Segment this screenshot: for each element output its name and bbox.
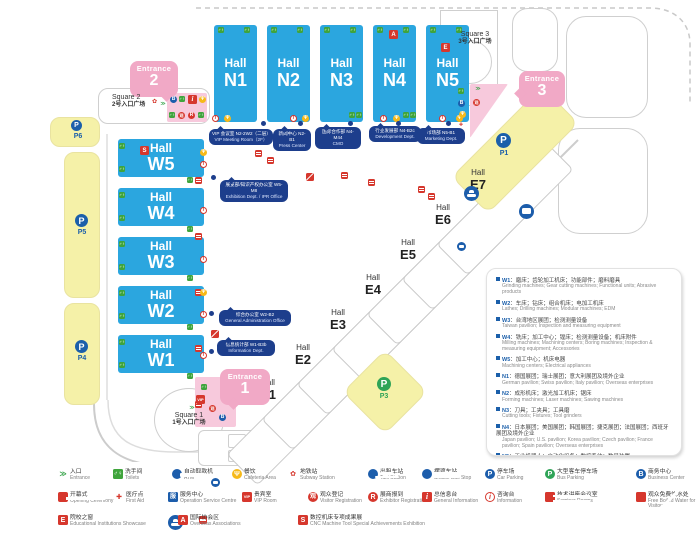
seminar-icon	[195, 233, 202, 240]
bullet-icon	[496, 453, 500, 456]
panel-item-en: Machining centers; Electrical appliances	[502, 364, 672, 370]
toilets-icon: ♂♀	[244, 27, 250, 33]
legend-item-subway: ✿地铁站Subway Station	[288, 469, 335, 481]
legend-label-en: General Information	[434, 499, 478, 505]
cafeteria-icon: Ψ	[200, 149, 207, 156]
exhibition-floor-plan: { "colors":{"hall_blue":"#2BA6DF","entra…	[0, 0, 700, 546]
seminar-icon	[195, 177, 202, 184]
toilets-icon: ♂♀	[356, 112, 362, 118]
legend-label-en: VIP Room	[254, 499, 277, 505]
assoc-icon: A	[389, 30, 398, 39]
seminar-icon	[341, 172, 348, 179]
panel-item-w5: W5：加工中心；机床电器Machining centers; Electrica…	[496, 356, 672, 369]
hall-info-panel: W1：磨床；齿轮加工机床；功能部件；磨料磨具Grinding machines;…	[486, 268, 682, 456]
bullet-icon	[496, 300, 500, 304]
legend-label-en: Entrance	[70, 476, 90, 482]
panel-item-w4: W4：铣床；加工中心；镗床；检测测量设备；机床附件Milling machine…	[496, 334, 672, 353]
hall-w1: HallW1	[118, 335, 204, 373]
parking-icon: P	[71, 120, 82, 131]
cafeteria-icon: Ψ	[224, 115, 231, 122]
service-icon: 服	[168, 492, 178, 502]
panel-item-en: Taiwan pavilion; Inspection and measurin…	[502, 324, 672, 330]
info-icon: i	[200, 256, 207, 263]
hall-id: N2	[277, 71, 300, 90]
taxi-icon	[368, 469, 378, 479]
panel-item-n1: N1：德国展团；瑞士展团；意大利展团及境外企业German pavilion; …	[496, 373, 672, 386]
square-label-2: Square 11号入口广场	[156, 412, 222, 428]
toilets-icon: ♂♀	[187, 373, 193, 379]
atm-icon	[457, 242, 466, 251]
toilets-icon: ♂♀	[119, 143, 125, 149]
callout-3: 行业发展部 N4-B2cDevelopment Dept.	[369, 126, 421, 142]
legend-item-cafeteria: Ψ餐饮Cafeteria Area	[232, 469, 276, 481]
taxi-icon	[464, 186, 479, 201]
legend-item-taxi: 出租车站Taxi Station	[368, 469, 406, 481]
toilets-icon: ♂♀	[271, 27, 277, 33]
toilets-icon: ♂♀	[187, 226, 193, 232]
legend-item-cnc: S数控机床专项成果展CNC Machine Tool Special Achie…	[298, 515, 425, 527]
toilets-icon: ♂♀	[119, 313, 125, 319]
toilets-icon: ♂♀	[113, 469, 123, 479]
square-name-cn: 1号入口广场	[156, 420, 222, 427]
legend-label-en: Visitor Registration	[320, 499, 362, 505]
callout-anchor-dot	[261, 121, 266, 126]
square-name-cn: 2号入口广场	[112, 102, 158, 109]
panel-item-en: Japan pavilion; U.S. pavilion; Korea pav…	[502, 438, 672, 450]
hall-w3: HallW3	[118, 237, 204, 275]
panel-item-cn: 工业机器人；自动化设备；数控系统；数显装置	[515, 454, 631, 456]
square-label-1: Square 22号入口广场	[112, 94, 158, 110]
hall-n1: HallN1	[214, 25, 257, 122]
hall-label-e6: HallE6	[421, 204, 465, 227]
info-icon: i	[485, 492, 495, 502]
legend-text: 洗手间Toilets	[125, 469, 142, 481]
entrance-3-bubble: Entrance3	[519, 71, 565, 107]
shuttle-icon	[422, 469, 432, 479]
info-icon: i	[200, 161, 207, 168]
cafeteria-icon: Ψ	[200, 289, 207, 296]
firstaid-icon: ✚	[114, 492, 124, 502]
toilets-icon: ♂♀	[430, 27, 436, 33]
legend-item-firstaid: ✚医疗点First Aid	[114, 492, 144, 504]
hall-label-e2: HallE2	[281, 344, 325, 367]
hall-id: W4	[148, 204, 175, 223]
bullet-icon	[496, 317, 500, 321]
legend-item-water: 观众免费饮水处Free Boiled Water for Visitors	[636, 492, 700, 510]
visitor-icon: 观	[473, 99, 480, 106]
callout-text-en: Information Dept.	[220, 348, 272, 354]
panel-item-en: Lathes; Drilling machines; Modular machi…	[502, 307, 672, 313]
bullet-icon	[496, 390, 500, 394]
panel-item-code: N4	[502, 425, 509, 431]
toilets-icon: ♂♀	[403, 112, 409, 118]
toilets-icon: ♂♀	[119, 339, 125, 345]
info-icon: i	[200, 352, 207, 359]
seminar-icon	[545, 492, 555, 502]
legend-item-info: i咨询台Information	[485, 492, 522, 504]
entrance-icon: ≫	[58, 469, 68, 479]
hall-id: N4	[383, 71, 406, 90]
hall-word: Hall	[277, 57, 299, 70]
hall-word: Hall	[436, 57, 458, 70]
legend-label-en: First Aid	[126, 499, 144, 505]
legend-label-en: Overseas Associations	[190, 522, 241, 528]
bullet-icon	[496, 356, 500, 360]
legend-item-entrance: ≫入口Entrance	[58, 469, 90, 481]
legend-item-opening: 开幕式Opening Ceremony	[58, 492, 113, 504]
callout-text-en: Press Center	[276, 143, 308, 149]
legend-text: 地铁站Subway Station	[300, 469, 335, 481]
hall-w4: HallW4	[118, 188, 204, 226]
panel-item-en: Grinding machines; Gear cutting machines…	[502, 284, 672, 296]
exhibitor-icon: R	[368, 492, 378, 502]
hall-id: W2	[148, 302, 175, 321]
toilets-icon: ♂♀	[198, 112, 204, 118]
hall-id: E4	[351, 283, 395, 297]
bullet-icon	[496, 277, 500, 281]
info-icon: i	[290, 115, 297, 122]
legend-label-en: Business Center	[648, 476, 685, 482]
toilets-icon: ♂♀	[119, 290, 125, 296]
entrance-1-bubble: Entrance1	[220, 369, 270, 405]
legend-text: 贵宾室VIP Room	[254, 492, 277, 504]
buspark-icon: P	[545, 469, 555, 479]
callout-anchor-dot	[211, 175, 216, 180]
toilets-icon: ♂♀	[119, 362, 125, 368]
assoc-icon: A	[178, 515, 188, 525]
panel-item-cn: 日本展团；美国展团；韩国展团；捷克展团；法国展团；西班牙展团及境外企业	[496, 425, 669, 437]
legend-text: 观众登记Visitor Registration	[320, 492, 362, 504]
toilets-icon: ♂♀	[458, 88, 464, 94]
toilets-icon: ♂♀	[377, 27, 383, 33]
map-legend: ≫入口Entrance♂♀洗手间Toilets自动取款机ATMΨ餐饮Cafete…	[0, 462, 700, 546]
seminar-icon	[195, 345, 202, 352]
cafeteria-icon: Ψ	[199, 96, 206, 103]
parking-icon: P	[496, 133, 511, 148]
legend-item-edu: E院校之窗Educational Institutions Showcase	[58, 515, 146, 527]
water-icon	[306, 173, 314, 181]
panel-item-en: Milling machines; Machining centers; Bor…	[502, 341, 672, 353]
legend-text: 数控机床专项成果展CNC Machine Tool Special Achiev…	[310, 515, 425, 527]
parking-icon: P	[377, 377, 391, 391]
road-outline	[558, 128, 648, 234]
legend-text: 展商报到Exhibitor Registration	[380, 492, 428, 504]
legend-item-geninfo: i总信息台General Information	[422, 492, 478, 504]
entrance-icon: ≫	[474, 85, 482, 93]
callout-4: 市场部 N5-B1Marketing Dept.	[417, 128, 465, 144]
hall-word: Hall	[383, 57, 405, 70]
parking-icon: P	[75, 214, 88, 227]
legend-item-visitor: 观观众登记Visitor Registration	[308, 492, 362, 504]
bizcenter-icon: B	[458, 100, 465, 107]
hall-label-e4: HallE4	[351, 274, 395, 297]
vip-icon: VIP	[196, 395, 205, 404]
road-outline	[512, 8, 558, 72]
legend-item-assoc: A国际协会区Overseas Associations	[178, 515, 241, 527]
legend-text: 总信息台General Information	[434, 492, 478, 504]
vip-icon: VIP	[242, 492, 252, 502]
parking-icon: P	[75, 340, 88, 353]
hall-id: W5	[148, 155, 175, 174]
seminar-icon	[267, 157, 274, 164]
seminar-icon	[255, 150, 262, 157]
legend-item-carpark: P停车场Car Parking	[485, 469, 523, 481]
legend-item-bizcenter: B商务中心Business Center	[636, 469, 685, 481]
hall-id: W3	[148, 253, 175, 272]
toilets-icon: ♂♀	[349, 112, 355, 118]
toilets-icon: ♂♀	[187, 177, 193, 183]
legend-label-en: Car Parking	[497, 476, 523, 482]
parking-label: P3	[375, 393, 393, 400]
callout-anchor-dot	[446, 121, 451, 126]
entrance-icon: ≫	[188, 404, 196, 412]
bullet-icon	[496, 334, 500, 338]
panel-item-n4: N4：日本展团；美国展团；韩国展团；捷克展团；法国展团；西班牙展团及境外企业Ja…	[496, 424, 672, 450]
entrance-number: 1	[220, 381, 270, 398]
legend-item-atm: 自动取款机ATM	[172, 469, 213, 481]
callout-text-cn: 展览部/知识产权办公室 W5-M8	[226, 182, 283, 193]
legend-label-en: Operation Service Centre	[180, 499, 236, 505]
parking-label: P6	[69, 133, 87, 140]
legend-item-service: 服服务中心Operation Service Centre	[168, 492, 236, 504]
hall-word: Hall	[224, 57, 246, 70]
seminar-icon	[368, 179, 375, 186]
hall-id: N1	[224, 71, 247, 90]
legend-text: 大型客车停车场Bus Parking	[557, 469, 598, 481]
info-icon: i	[439, 115, 446, 122]
panel-item-w1: W1：磨床；齿轮加工机床；功能部件；磨料磨具Grinding machines;…	[496, 277, 672, 296]
parking-label: P4	[73, 355, 91, 362]
toilets-icon: ♂♀	[119, 192, 125, 198]
callout-1: 新闻中心 N2-B1Press Center	[273, 129, 311, 151]
hall-id: E6	[421, 213, 465, 227]
entrance-number: 2	[130, 73, 178, 90]
hall-label-e5: HallE5	[386, 239, 430, 262]
hall-n2: HallN2	[267, 25, 310, 122]
hall-label-e3: HallE3	[316, 309, 360, 332]
legend-text: 咨询台Information	[497, 492, 522, 504]
toilets-icon: ♂♀	[218, 27, 224, 33]
legend-text: 国际协会区Overseas Associations	[190, 515, 241, 527]
callout-text-en: Exhibition Dept. / IPR Office	[223, 194, 285, 200]
visitor-icon: 观	[209, 405, 216, 412]
legend-label-en: Free Boiled Water for Visitors	[648, 499, 700, 511]
opening-icon	[58, 492, 68, 502]
hall-n3: HallN3	[320, 25, 363, 122]
panel-item-n3: N3：刀具；工夹具；工具磨Cutting tools; Fixtures; To…	[496, 407, 672, 420]
legend-text: 服务中心Operation Service Centre	[180, 492, 236, 504]
square-name-cn: 3号入口广场	[444, 39, 506, 46]
parking-label: P5	[73, 229, 91, 236]
visitor-icon: 观	[178, 112, 185, 119]
hall-id: N3	[330, 71, 353, 90]
legend-text: 院校之窗Educational Institutions Showcase	[70, 515, 146, 527]
hall-id: N5	[436, 71, 459, 90]
geninfo-icon: i	[188, 95, 197, 104]
callout-anchor-dot	[209, 311, 214, 316]
edu-icon: E	[58, 515, 68, 525]
parking-area-p4	[64, 303, 100, 405]
toilets-icon: ♂♀	[119, 166, 125, 172]
bullet-icon	[496, 407, 500, 411]
hall-id: W1	[148, 351, 175, 370]
panel-item-code: N5	[502, 454, 509, 456]
cnc-icon: S	[298, 515, 308, 525]
info-icon: i	[212, 115, 219, 122]
legend-item-toilets: ♂♀洗手间Toilets	[113, 469, 142, 481]
legend-item-shuttle: 摆渡车站Shuttle Bus Stop	[422, 469, 471, 481]
panel-item-w2: W2：车床；钻床；组合机床；电加工机床Lathes; Drilling mach…	[496, 300, 672, 313]
callout-0: VIP 会议室 N2-2W2（二层）VIP Meeting Room（2F）	[209, 129, 273, 145]
toilets-icon: ♂♀	[403, 27, 409, 33]
cafeteria-icon: Ψ	[302, 115, 309, 122]
callout-5: 展览部/知识产权办公室 W5-M8Exhibition Dept. / IPR …	[220, 180, 288, 202]
toilets-icon: ♂♀	[410, 112, 416, 118]
square-label-3: Square 33号入口广场	[444, 31, 506, 47]
hall-w2: HallW2	[118, 286, 204, 324]
panel-item-en: Forming machines; Laser machines; Sawing…	[502, 398, 672, 404]
geninfo-icon: i	[422, 492, 432, 502]
legend-label-en: Cafeteria Area	[244, 476, 276, 482]
callout-text-cn: 信息统计部 W1-B3b	[226, 342, 267, 347]
parking-label: P1	[495, 150, 513, 157]
road-outline	[566, 16, 648, 118]
toilets-icon: ♂♀	[297, 27, 303, 33]
legend-item-vip: VIP贵宾室VIP Room	[242, 492, 277, 504]
panel-item-en: German pavilion; Swiss pavilion; Italy p…	[502, 381, 672, 387]
bizcenter-icon: B	[636, 469, 646, 479]
legend-item-seminar: 技术讲座会议室Seminar Rooms	[545, 492, 598, 504]
callout-text-cn: 国际合作部 N4-M44	[322, 129, 354, 140]
callout-text-cn: 新闻中心 N2-B1	[278, 131, 305, 142]
legend-item-exhibitor: R展商报到Exhibitor Registration	[368, 492, 428, 504]
cnc-icon: S	[140, 146, 149, 155]
bullet-icon	[496, 373, 500, 377]
carpark-icon: P	[485, 469, 495, 479]
callout-text-en: VIP Meeting Room（2F）	[212, 137, 270, 143]
legend-item-buspark: P大型客车停车场Bus Parking	[545, 469, 598, 481]
toilets-icon: ♂♀	[119, 264, 125, 270]
legend-text: 停车场Car Parking	[497, 469, 523, 481]
callout-text-cn: 行业发展部 N4-B2c	[375, 128, 415, 133]
hall-word: Hall	[330, 57, 352, 70]
legend-label-en: Toilets	[125, 476, 142, 482]
panel-item-n2: N2：成形机床；激光加工机床；锯床Forming machines; Laser…	[496, 390, 672, 403]
hall-id: E3	[316, 318, 360, 332]
cafeteria-icon: Ψ	[459, 111, 466, 118]
toilets-icon: ♂♀	[201, 384, 207, 390]
callout-text-en: Marketing Dept.	[420, 136, 462, 142]
callout-2: 国际合作部 N4-M44CMO	[315, 127, 361, 149]
panel-item-n5: N5：工业机器人；自动化设备；数控系统；数显装置Industrial robot…	[496, 453, 672, 456]
legend-label-en: Educational Institutions Showcase	[70, 522, 146, 528]
callout-text-en: General Administration Office	[222, 318, 288, 324]
callout-text-cn: 综合办公室 W2-B2	[236, 312, 274, 317]
hall-id: E2	[281, 353, 325, 367]
atm-icon	[172, 469, 182, 479]
legend-text: 医疗点First Aid	[126, 492, 144, 504]
subway-icon: ✿	[288, 469, 298, 479]
callout-6: 综合办公室 W2-B2General Administration Office	[219, 310, 291, 326]
callout-text-cn: VIP 会议室 N2-2W2（二层）	[212, 131, 271, 136]
toilets-icon: ♂♀	[119, 215, 125, 221]
callout-anchor-dot	[348, 121, 353, 126]
hall-w5: HallW5	[118, 139, 204, 177]
callout-anchor-dot	[209, 349, 214, 354]
visitor-icon: 观	[308, 492, 318, 502]
water-icon	[211, 330, 219, 338]
hall-n4: HallN4	[373, 25, 416, 122]
legend-text: 入口Entrance	[70, 469, 90, 481]
callout-7: 信息统计部 W1-B3bInformation Dept.	[217, 340, 275, 356]
panel-item-w3: W3：台湾地区展团；检测测量设备Taiwan pavilion; Inspect…	[496, 317, 672, 330]
toilets-icon: ♂♀	[179, 96, 185, 102]
legend-label-en: CNC Machine Tool Special Achievements Ex…	[310, 522, 425, 528]
toilets-icon: ♂♀	[187, 324, 193, 330]
entrance-2-bubble: Entrance2	[130, 61, 178, 97]
entrance-number: 3	[519, 83, 565, 100]
toilets-icon: ♂♀	[187, 275, 193, 281]
panel-item-en: Cutting tools; Fixtures; Tool grinders	[502, 414, 672, 420]
info-icon: i	[380, 115, 387, 122]
info-icon: i	[200, 311, 207, 318]
bus-icon	[519, 204, 534, 219]
info-icon: i	[200, 207, 207, 214]
bullet-icon	[496, 424, 500, 428]
exhibitor-icon: R	[188, 112, 195, 119]
cafeteria-icon: Ψ	[232, 469, 242, 479]
legend-label-en: Subway Station	[300, 476, 335, 482]
toilets-icon: ♂♀	[169, 112, 175, 118]
callout-text-en: CMO	[318, 141, 358, 147]
water-icon	[636, 492, 646, 502]
legend-label-en: Bus Parking	[557, 476, 598, 482]
toilets-icon: ♂♀	[324, 27, 330, 33]
callout-text-en: Development Dept.	[372, 134, 418, 140]
toilets-icon: ♂♀	[350, 27, 356, 33]
legend-label-en: Exhibitor Registration	[380, 499, 428, 505]
legend-label-en: Information	[497, 499, 522, 505]
legend-text: 餐饮Cafeteria Area	[244, 469, 276, 481]
hall-id: E5	[386, 248, 430, 262]
toilets-icon: ♂♀	[119, 241, 125, 247]
seminar-icon	[418, 186, 425, 193]
callout-text-cn: 市场部 N5-B1	[427, 130, 455, 135]
legend-text: 商务中心Business Center	[648, 469, 685, 481]
seminar-icon	[428, 193, 435, 200]
hall-label-e7: HallE7	[456, 169, 500, 192]
callout-anchor-dot	[298, 121, 303, 126]
